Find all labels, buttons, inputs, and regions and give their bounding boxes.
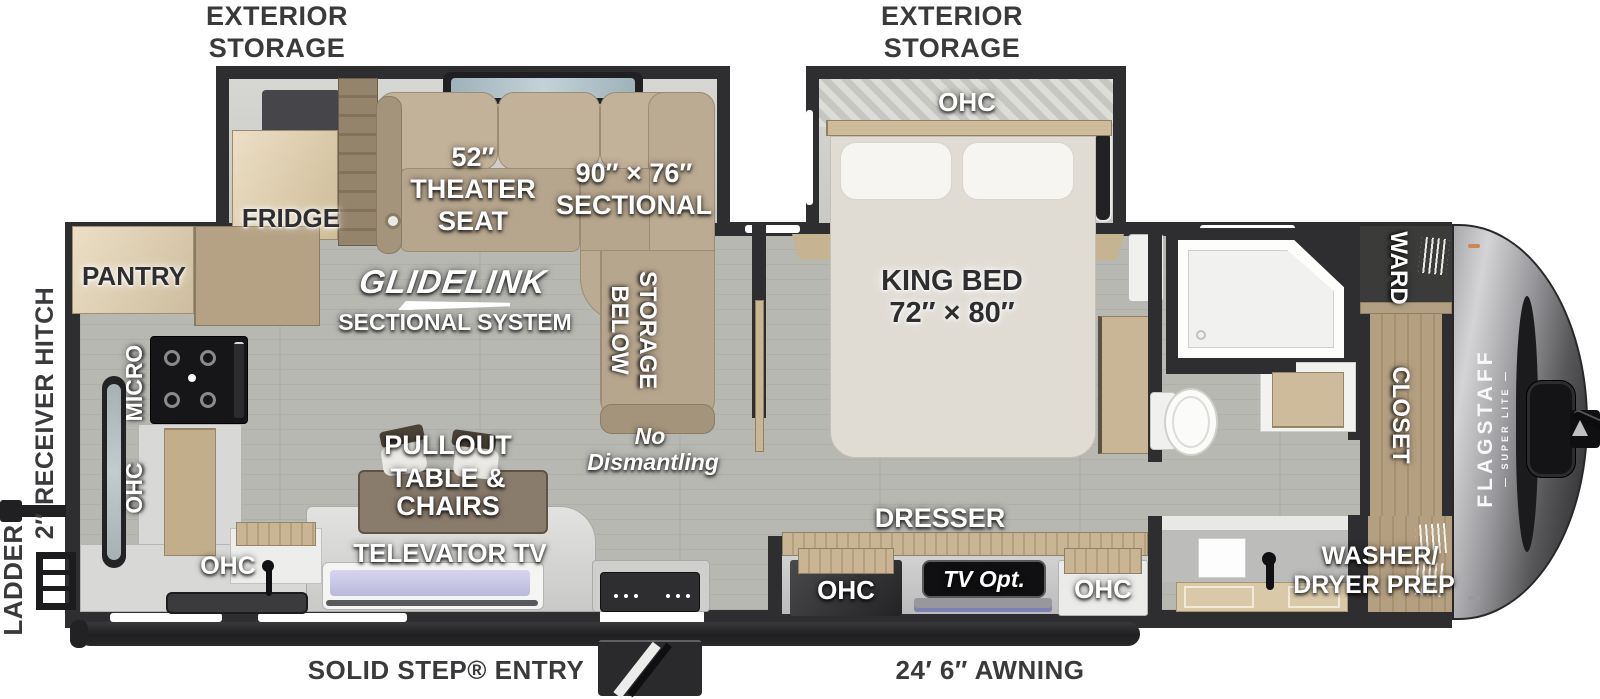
entry-grill-dots	[614, 594, 618, 598]
ward-shelf	[1360, 302, 1452, 314]
dresser-ohc-left-lid	[798, 548, 894, 574]
vanity-backsplash	[1162, 530, 1348, 582]
sofa-back-2	[498, 92, 600, 170]
bumper-end-cap	[70, 620, 88, 648]
pillow-left	[840, 142, 952, 200]
vanity-basin-left	[1184, 586, 1254, 608]
fridge-side-panel	[338, 78, 378, 246]
dresser-ohc-right-lid	[1064, 548, 1142, 574]
kitchen-window-glass	[107, 384, 121, 560]
bath-drawer	[1272, 372, 1344, 428]
televator-tv-screen	[330, 570, 530, 596]
bed-window-left	[806, 110, 813, 205]
stove-burner-4	[200, 392, 216, 408]
rear-ladder	[36, 552, 76, 610]
kitchen-base-cabinet	[164, 428, 216, 556]
exterior-storage-right-line1: EXTERIOR	[832, 2, 1072, 32]
bed-head-shelf	[826, 120, 1112, 136]
sectional-chaise-front	[600, 404, 715, 434]
window-bottom-1	[110, 613, 222, 622]
kitchen-sink	[166, 592, 308, 614]
stove-center-burner	[188, 374, 196, 382]
toilet-seat	[1172, 396, 1210, 448]
sofa-armrest	[376, 96, 402, 254]
closet-interior	[1360, 314, 1452, 516]
receiver-hitch-bracket	[20, 505, 66, 517]
pantry-cabinet	[72, 226, 194, 314]
exterior-storage-left-line2: STORAGE	[157, 34, 397, 64]
pillow-right	[962, 142, 1074, 200]
window-bottom-2	[258, 613, 407, 622]
tv-opt-box	[922, 560, 1046, 598]
fridge	[232, 130, 338, 240]
shower-drain	[1196, 330, 1206, 340]
vanity-mirror	[1198, 538, 1246, 578]
kitchen-ohc-lid	[236, 522, 316, 546]
stove-control-strip	[234, 342, 244, 418]
fridge-recess	[262, 90, 340, 134]
vanity-faucet-head	[1262, 552, 1276, 566]
stove-burner-3	[200, 350, 216, 366]
stove-burner-2	[164, 392, 180, 408]
wd-hangers-1	[1415, 523, 1447, 555]
cap-marker-top	[1468, 244, 1480, 248]
exterior-storage-left-line1: EXTERIOR	[157, 2, 397, 32]
cap-marker-bottom	[1468, 596, 1480, 600]
pullout-table	[358, 470, 548, 534]
ladder-label: LADDER	[0, 510, 28, 650]
kitchen-upper-cabinets	[194, 226, 320, 326]
ladder-rung-1	[43, 570, 69, 575]
wd-hangers-2	[1411, 561, 1446, 598]
sectional-chaise	[600, 250, 715, 418]
bath-wall-left-lower	[1148, 516, 1162, 612]
bed-window-right	[1094, 130, 1112, 222]
ladder-rung-2	[43, 586, 69, 591]
stove-burner-1	[164, 350, 180, 366]
kitchen-faucet-head	[262, 560, 274, 572]
dresser-end-post	[768, 536, 782, 616]
receiver-hitch-tube	[0, 500, 22, 522]
chair-seat-2	[453, 446, 500, 480]
tv-flat	[914, 598, 1052, 612]
chair-seat-1	[380, 441, 428, 477]
televator-tv-base	[326, 600, 538, 606]
awning-label: 24′ 6″ AWNING	[840, 655, 1140, 687]
sectional-corner-seat	[580, 168, 650, 252]
vanity-wall	[1162, 516, 1348, 530]
solid-step-entry-label: SOLID STEP® ENTRY	[296, 655, 596, 687]
sofa-cupholder	[385, 213, 401, 229]
entry-grill-tray	[600, 572, 700, 612]
exterior-storage-right-line2: STORAGE	[832, 34, 1072, 64]
rv-floorplan: GLIDELINK EXTERIOR STORAGE EXTERIOR STOR…	[0, 0, 1600, 699]
hitch-jack-housing	[1526, 380, 1576, 478]
vanity-basin-right	[1288, 586, 1340, 608]
theater-seat-cushions	[400, 168, 580, 252]
bedroom-pocket-door	[755, 300, 764, 452]
ward-hangers	[1418, 237, 1450, 276]
bath-wall-right-lower	[1348, 515, 1360, 612]
